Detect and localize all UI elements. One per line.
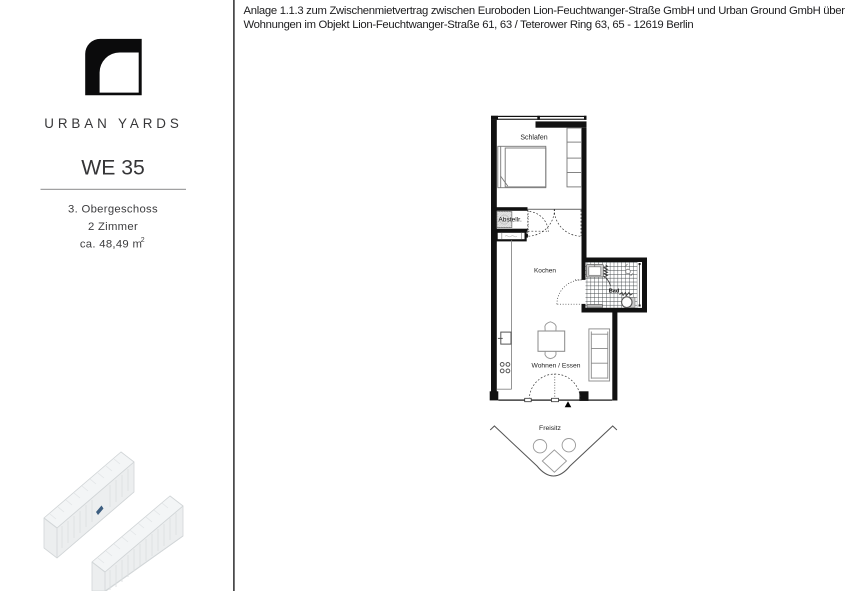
svg-text:Abstellr.: Abstellr. bbox=[498, 217, 522, 224]
svg-text:WE 35: WE 35 bbox=[81, 156, 145, 179]
svg-text:URBAN YARDS: URBAN YARDS bbox=[44, 116, 182, 131]
svg-text:Bad: Bad bbox=[609, 288, 620, 294]
svg-text:Kochen: Kochen bbox=[534, 267, 556, 274]
svg-text:Freisitz: Freisitz bbox=[539, 425, 562, 432]
svg-text:2 Zimmer: 2 Zimmer bbox=[88, 221, 138, 233]
svg-text:2: 2 bbox=[141, 237, 145, 244]
svg-text:ca. 48,49 m: ca. 48,49 m bbox=[80, 238, 142, 250]
svg-text:Wohnen / Essen: Wohnen / Essen bbox=[532, 363, 581, 370]
svg-text:Schlafen: Schlafen bbox=[520, 135, 547, 142]
svg-text:3. Obergeschoss: 3. Obergeschoss bbox=[68, 203, 158, 215]
svg-text:Anlage 1.1.3 zum Zwischenmietv: Anlage 1.1.3 zum Zwischenmietvertrag zwi… bbox=[244, 5, 846, 17]
svg-text:Wohnungen im Objekt Lion-Feuch: Wohnungen im Objekt Lion-Feuchtwanger-St… bbox=[244, 19, 694, 31]
